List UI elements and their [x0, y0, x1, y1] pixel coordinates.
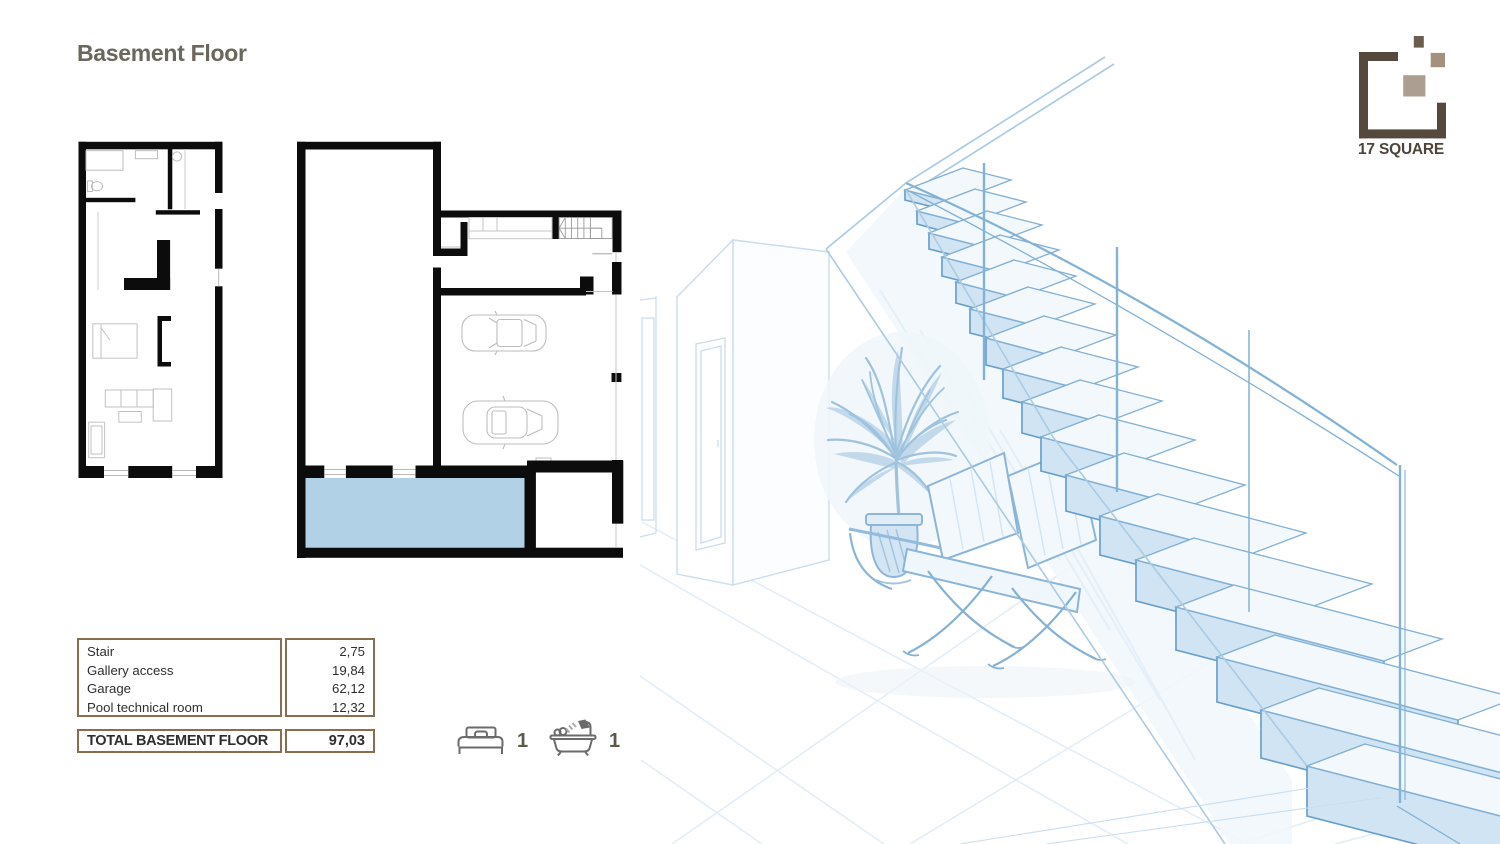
svg-text:1: 1	[517, 730, 528, 752]
svg-text:1: 1	[609, 730, 620, 752]
svg-text:17 SQUARE: 17 SQUARE	[1358, 141, 1444, 158]
